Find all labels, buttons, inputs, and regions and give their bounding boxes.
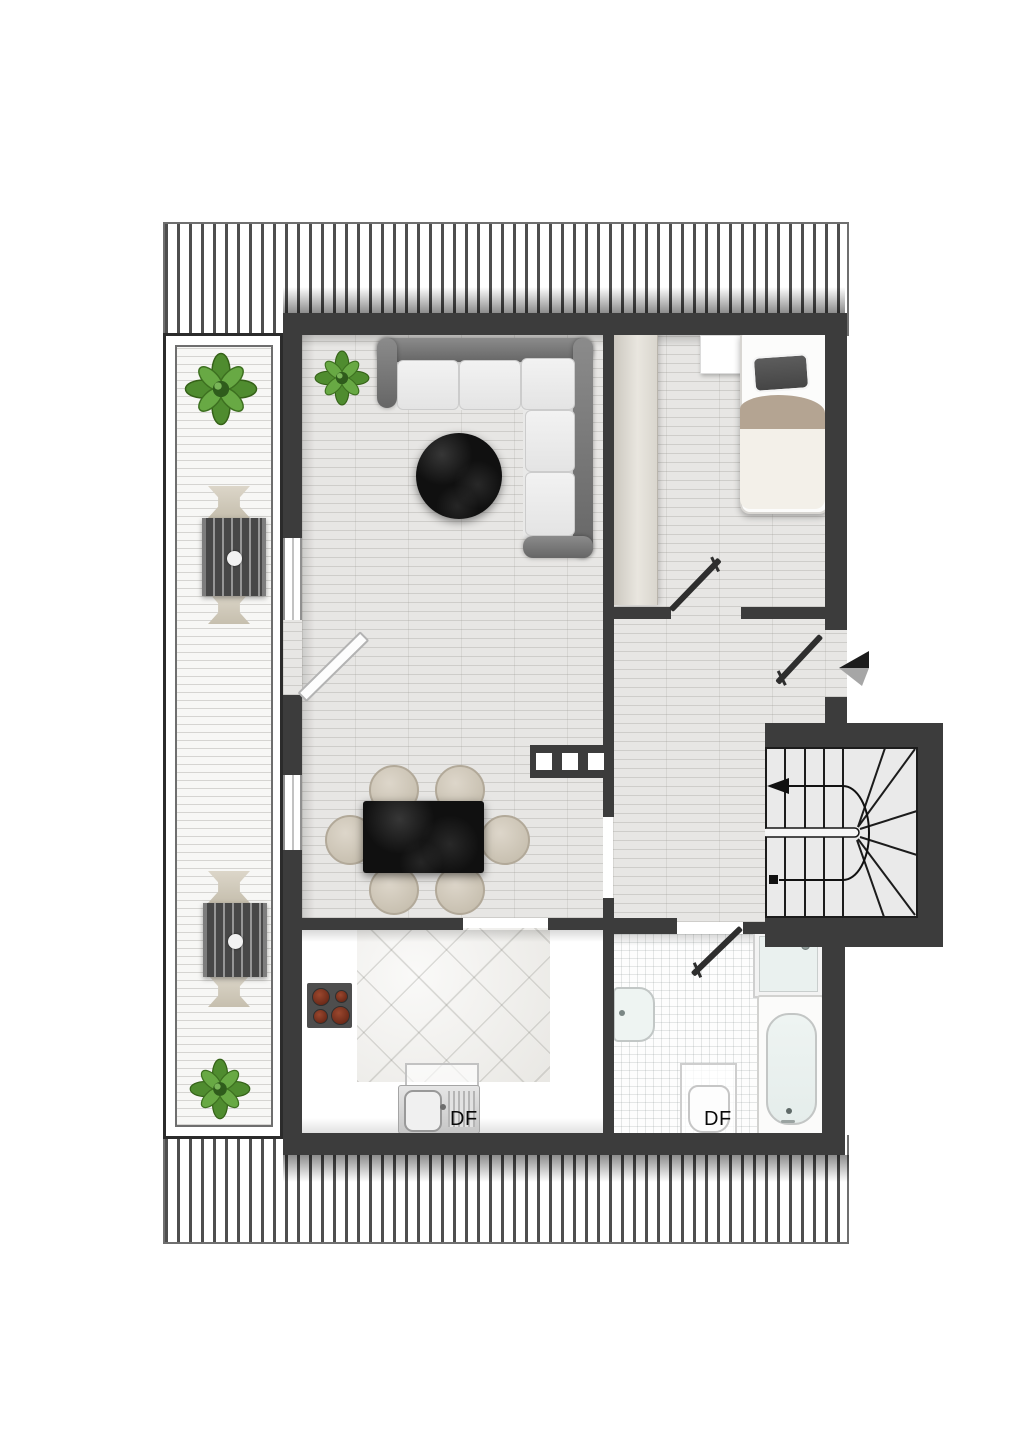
- corner-sofa-backrest: [573, 338, 593, 558]
- wall-outer-right-bathroom: [822, 947, 845, 1135]
- wall-outer-right-stub: [825, 697, 847, 725]
- burner-icon: [313, 1009, 328, 1024]
- wall-bathroom-top-right: [743, 922, 767, 934]
- staircase: [765, 747, 918, 918]
- terrace-door-threshold: [283, 620, 302, 695]
- wall-outer-bottom: [283, 1133, 845, 1155]
- bathtub: [757, 995, 824, 1138]
- bed-blanket: [740, 395, 825, 431]
- wall-stair-bottom: [765, 918, 943, 947]
- roof-window-label-bathroom: DF: [704, 1108, 732, 1131]
- entrance-arrow-icon: [838, 648, 870, 688]
- burner-icon: [312, 988, 330, 1006]
- bathtub-drain-icon: [781, 1120, 795, 1123]
- stair-start-marker: [769, 875, 778, 884]
- sofa-cushion: [459, 360, 521, 410]
- wall-kitchen-top-left: [302, 918, 463, 930]
- sink-bowl: [404, 1090, 442, 1132]
- sofa-cushion: [525, 410, 575, 472]
- wall-stair-top: [765, 723, 943, 747]
- kitchen-tiled-area: [357, 928, 550, 1082]
- terrace-table-knob: [228, 934, 243, 949]
- sofa-cushion: [397, 360, 459, 410]
- round-coffee-table: [416, 433, 502, 519]
- wall-outer-right-upper: [825, 313, 847, 630]
- terrace-table: [203, 903, 267, 977]
- glass-block: [562, 753, 578, 770]
- terrace-table: [202, 518, 266, 596]
- sofa-cushion: [521, 358, 575, 410]
- window: [283, 775, 302, 850]
- terrace-deck: [175, 345, 273, 1127]
- faucet-icon: [440, 1104, 446, 1110]
- glass-block-partition: [530, 745, 603, 778]
- window: [283, 538, 302, 620]
- wall-outer-left-c: [283, 850, 302, 1135]
- glass-block: [536, 753, 552, 770]
- burner-icon: [335, 990, 348, 1003]
- single-bed: [740, 333, 829, 514]
- wall-bathroom-top-left: [613, 922, 677, 934]
- wall-outer-left-b: [283, 695, 302, 775]
- terrace-table-knob: [227, 551, 242, 566]
- burner-icon: [331, 1006, 350, 1025]
- wall-bedroom-bottom-left: [613, 607, 671, 619]
- nightstand: [700, 335, 742, 374]
- potted-plant-icon: [189, 1058, 251, 1120]
- wall-living-bedroom-divider: [603, 330, 614, 817]
- faucet-icon: [786, 1108, 792, 1114]
- potted-plant-icon: [184, 352, 258, 426]
- bathroom-sink: [613, 987, 655, 1042]
- bathtub-basin: [766, 1013, 817, 1125]
- glass-block: [588, 753, 604, 770]
- wall-outer-top: [283, 313, 847, 335]
- faucet-icon: [619, 1010, 625, 1016]
- bed-pillow: [752, 353, 810, 393]
- wall-bedroom-bottom-right: [741, 607, 825, 619]
- corner-sofa-armrest: [377, 338, 397, 408]
- wardrobe: [614, 333, 658, 605]
- corner-sofa-armrest: [523, 536, 593, 558]
- dining-chair: [480, 815, 530, 865]
- potted-plant-icon: [314, 350, 370, 406]
- roof-window-label-kitchen: DF: [450, 1108, 478, 1131]
- sofa-cushion: [525, 472, 575, 536]
- wall-outer-left-a: [283, 335, 302, 538]
- roof-shadow-below-bottom-wall: [283, 1155, 849, 1182]
- floor-plan-canvas: DF DF: [0, 0, 1018, 1440]
- bed-sheet: [740, 429, 825, 509]
- dining-table: [363, 801, 484, 873]
- roof-shadow-above-top-wall: [283, 287, 845, 313]
- wall-stair-right: [918, 723, 943, 947]
- cooktop: [307, 983, 352, 1028]
- stair-divider: [765, 828, 859, 837]
